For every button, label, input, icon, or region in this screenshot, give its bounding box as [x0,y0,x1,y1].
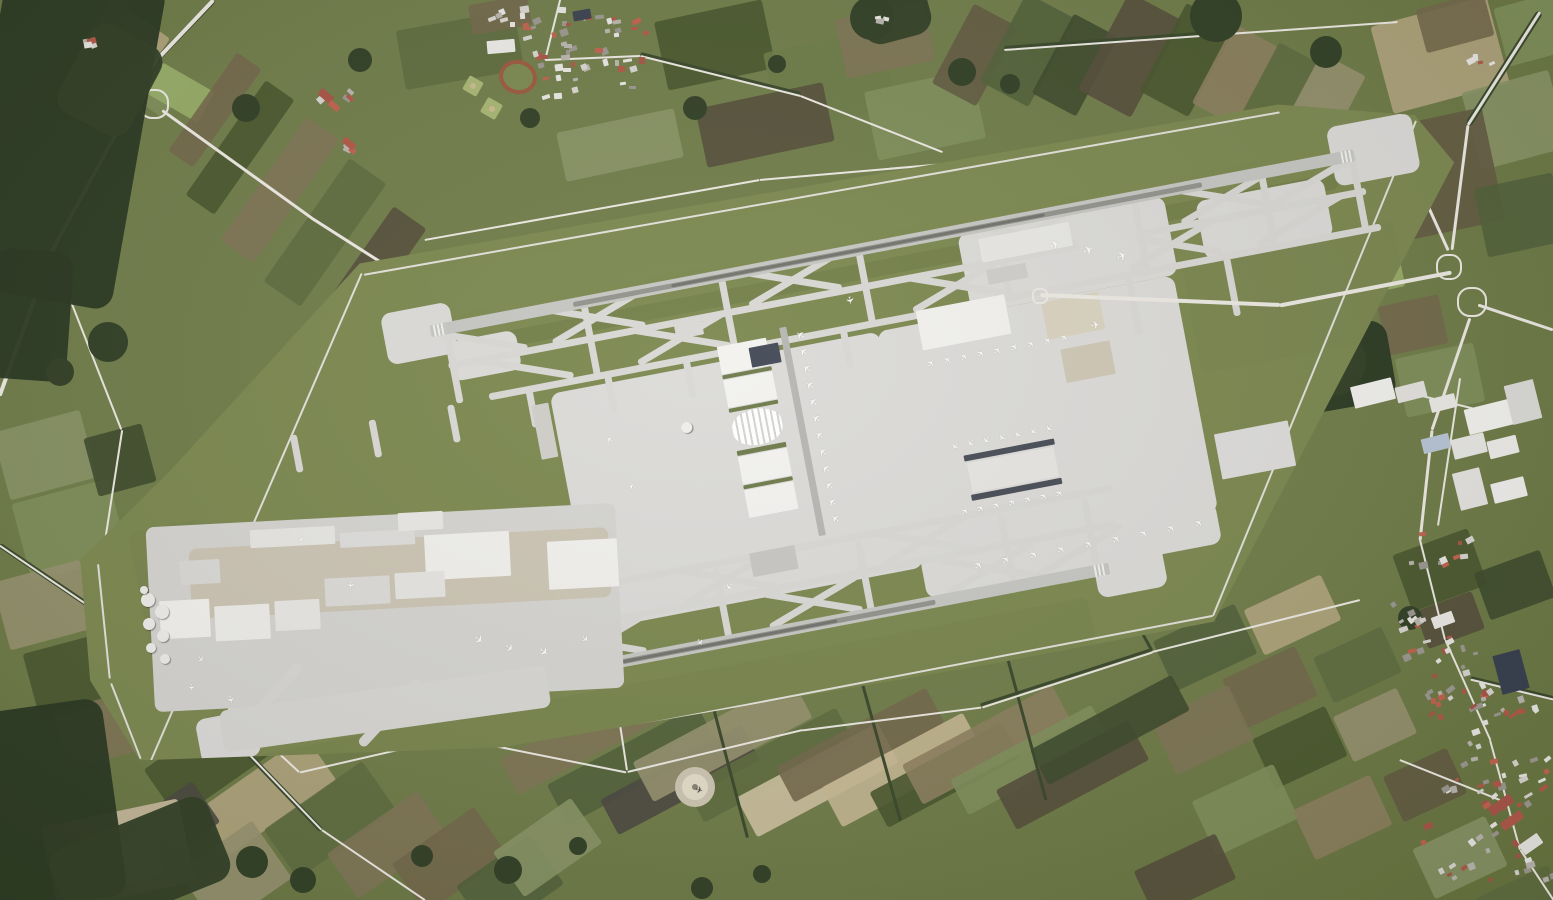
hangar-building [263,639,304,661]
village-house [561,55,570,61]
village-house [614,33,620,38]
village-house [629,65,638,73]
fuel-tank [140,586,148,594]
tree-clump [348,48,372,72]
village-house [522,35,531,41]
village-house [604,29,610,34]
tree-clump [569,837,587,855]
village-house [1487,876,1493,882]
fuel-tank [157,630,169,642]
village-house [1524,799,1532,807]
village-house [1402,653,1412,662]
building [1519,833,1544,855]
village-house [1503,710,1509,716]
village-house [83,41,92,48]
village-house [563,68,571,73]
village-house [520,12,526,18]
tree-clump [683,96,707,120]
village-house [1432,674,1437,679]
village-house [554,92,563,99]
warehouse-building [1452,467,1488,511]
village-house [559,28,569,37]
village-house [1390,601,1397,608]
hangar-building [547,538,619,590]
village-house [1493,712,1501,718]
village-house [564,44,572,49]
village-house [1458,540,1463,545]
village-house [1516,802,1522,808]
village-house [1517,695,1525,703]
terminal-building [673,316,704,339]
perimeter-road [97,564,111,679]
village-house [1481,696,1487,701]
village-house [623,59,632,63]
fuel-tank [146,643,156,653]
hangar-building [214,604,271,642]
village-house [1482,779,1488,784]
tree-clump [232,94,260,122]
runway-threshold [1340,149,1354,163]
village-house [643,31,649,35]
tree-clump [1000,74,1020,94]
village-house [620,82,627,86]
village-house [1398,625,1408,633]
taxiway-connector [446,404,460,443]
village-house [602,59,609,67]
village-house [543,76,549,81]
village-house [1550,872,1553,880]
runway-threshold [433,323,447,337]
fuel-tank [160,654,170,664]
village-house [551,32,557,39]
baseball-infield [489,106,495,112]
aircraft-icon: ✈ [184,683,194,691]
hangar-building [324,575,390,606]
village-house [1490,821,1498,828]
village-house [1530,757,1539,764]
village-house [1543,768,1550,775]
aircraft-icon: ✈ [843,295,854,305]
village-house [1515,870,1521,876]
village-house [1501,772,1506,778]
terminal-building [1214,420,1296,479]
building [1492,649,1529,695]
village-house [1435,658,1441,664]
village-house [631,18,641,26]
aircraft-icon: ✈ [693,786,703,797]
tree-clump [494,856,522,884]
aircraft-icon: ✈ [627,480,635,490]
hangar-building [394,571,445,600]
baseball-infield [470,83,476,89]
village-house [1428,711,1435,718]
building [327,100,340,112]
village-house [1524,792,1533,799]
road [157,0,215,59]
farm-field [1292,775,1392,861]
village-house [1419,531,1426,536]
warehouse-building [1486,435,1519,460]
village-house [1445,685,1455,694]
village-house [1460,664,1466,669]
tree-clump [236,846,268,878]
satellite-photo: ✈✈✈✈✈✈✈✈✈✈✈✈✈✈✈✈✈✈✈✈✈✈✈✈✈✈✈✈✈✈✈✈✈✈✈✈✈✈✈✈… [0,0,1553,900]
fuel-tank [141,593,155,607]
farm-field [695,82,835,168]
warehouse-building [1421,433,1452,454]
village-house [1544,756,1552,764]
aircraft-icon: ✈ [344,581,354,589]
runway-threshold [1093,563,1107,577]
village-house [555,75,561,82]
tree-clump [768,55,786,73]
village-house [572,77,578,81]
taxiway-connector [289,434,303,473]
village-house [571,61,575,66]
fuel-tank [143,618,155,630]
village-house [1470,756,1478,762]
village-house [631,27,638,30]
village-house [618,66,626,72]
village-house [1416,647,1424,655]
village-house [594,15,603,20]
village-house [1467,741,1473,747]
village-house [572,87,579,94]
village-house [538,62,545,68]
interchange-ramp [1457,287,1487,317]
village-house [542,93,551,99]
hangar-building [274,599,321,631]
village-house [1516,854,1522,859]
tree-clump [290,867,316,893]
tree-clump [88,322,128,362]
tree-clump [948,58,976,86]
warehouse-building [1490,476,1528,504]
village-house [1462,669,1470,677]
village-house [558,7,566,14]
road [1478,304,1553,332]
roundabout [1032,288,1048,304]
village-house [1447,695,1454,701]
tree-clump [520,108,540,128]
village-house [613,19,621,25]
tree-clump [411,845,433,867]
village-house [639,57,646,64]
building [486,39,515,54]
taxiway-connector [368,419,382,458]
tree-clump [1310,36,1342,68]
hangar-building [179,559,220,585]
village-house [1537,777,1545,783]
village-house [1476,743,1482,749]
village-house [1471,728,1481,737]
farm-field [556,108,684,182]
aircraft-icon: ✈ [1090,318,1101,331]
village-house [1450,785,1457,793]
village-house [532,16,542,25]
village-house [540,55,548,59]
fuel-tank [155,605,169,619]
village-house [1511,759,1519,767]
tree-clump [691,877,713,899]
village-house [1460,761,1469,769]
village-house [510,22,515,28]
village-house [1539,784,1548,792]
warehouse-building [1464,399,1515,435]
tree-clump [46,358,74,386]
farm-field [1474,550,1553,621]
village-house [1460,645,1466,653]
village-house [1407,648,1416,654]
village-house [595,48,604,53]
warehouse-building [1450,432,1488,460]
farm-field [654,0,776,91]
village-house [1423,821,1434,830]
village-house [1437,713,1444,720]
village-house [1482,719,1489,725]
village-house [1509,712,1517,720]
village-house [1473,652,1479,656]
tree-clump [753,865,771,883]
hangar-building [398,511,444,531]
village-house [566,23,571,26]
village-house [530,26,536,31]
village-house [629,86,636,89]
